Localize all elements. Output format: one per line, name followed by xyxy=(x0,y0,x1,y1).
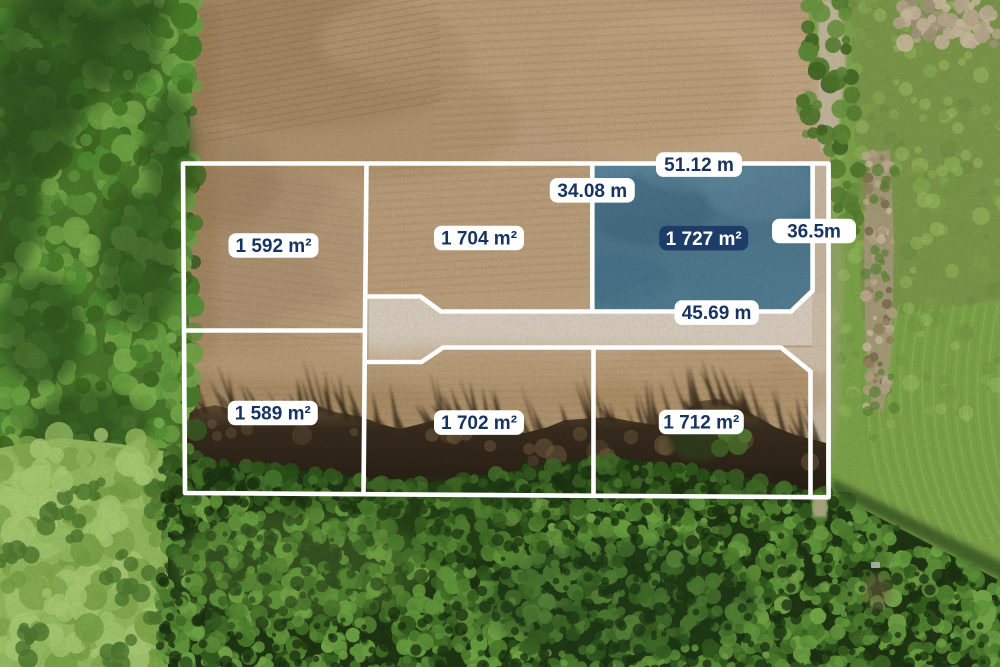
svg-text:1 592 m²: 1 592 m² xyxy=(235,236,311,257)
svg-text:1 589 m²: 1 589 m² xyxy=(235,404,311,425)
svg-text:45.69 m: 45.69 m xyxy=(682,303,752,324)
svg-text:36.5m: 36.5m xyxy=(787,222,841,243)
svg-text:1 702 m²: 1 702 m² xyxy=(441,413,517,434)
svg-text:51.12 m: 51.12 m xyxy=(664,155,734,176)
svg-text:34.08 m: 34.08 m xyxy=(557,181,627,202)
svg-text:1 704 m²: 1 704 m² xyxy=(441,229,517,250)
svg-text:1 712 m²: 1 712 m² xyxy=(663,413,739,434)
svg-text:1 727 m²: 1 727 m² xyxy=(666,229,742,250)
